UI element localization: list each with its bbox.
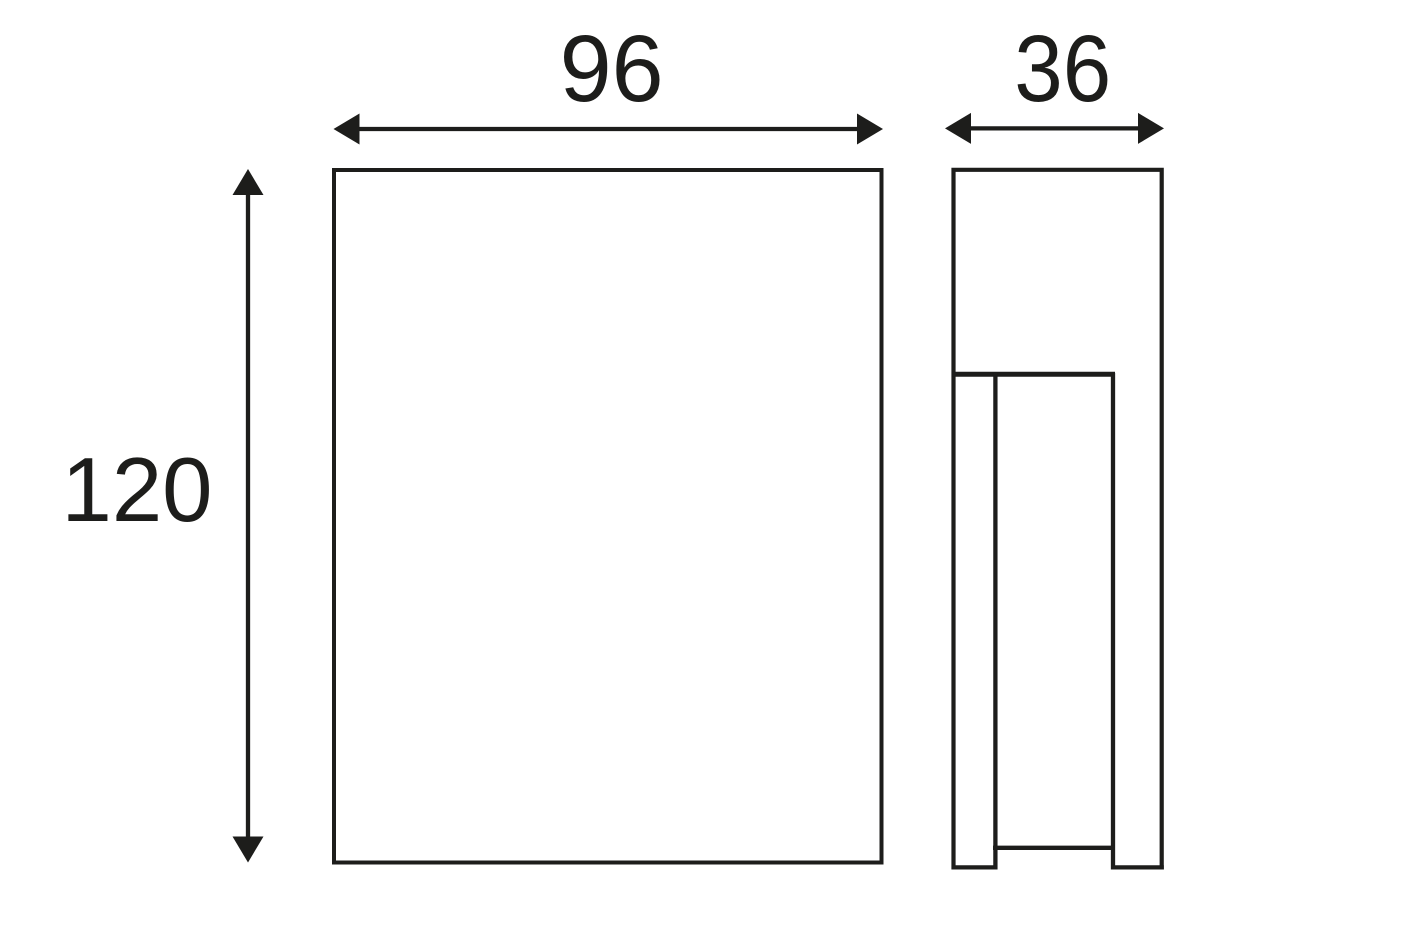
svg-text:120: 120 [62,440,213,541]
svg-text:96: 96 [560,16,664,122]
svg-text:36: 36 [1014,16,1111,122]
